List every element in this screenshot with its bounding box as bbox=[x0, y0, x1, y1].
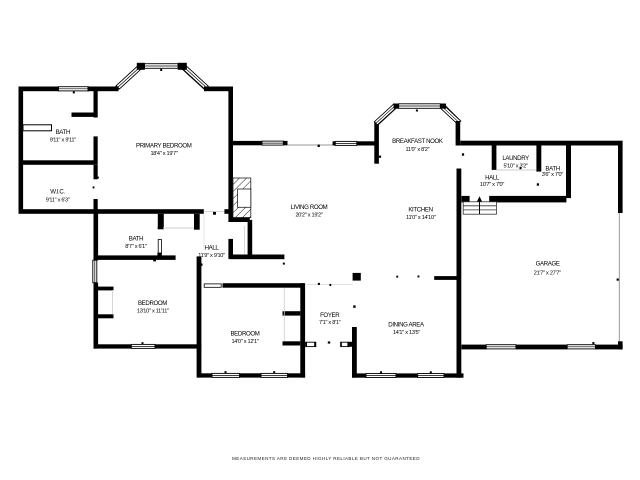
svg-text:W.I.C.: W.I.C. bbox=[50, 189, 65, 196]
svg-text:9'11" x 9'11": 9'11" x 9'11" bbox=[50, 138, 77, 144]
svg-text:5'10" x 3'2": 5'10" x 3'2" bbox=[503, 164, 528, 170]
svg-text:BREAKFAST NOOK: BREAKFAST NOOK bbox=[392, 138, 443, 145]
svg-text:10'7" x 7'0": 10'7" x 7'0" bbox=[480, 182, 505, 188]
svg-text:14'0" x 12'1": 14'0" x 12'1" bbox=[231, 339, 258, 345]
svg-text:11'0" x 8'2": 11'0" x 8'2" bbox=[406, 147, 430, 153]
svg-text:PRIMARY BEDROOM: PRIMARY BEDROOM bbox=[136, 142, 192, 149]
svg-text:HALL: HALL bbox=[485, 175, 500, 182]
svg-text:11'9" x 9'10": 11'9" x 9'10" bbox=[198, 253, 225, 259]
svg-text:7'1" x 8'1": 7'1" x 8'1" bbox=[319, 320, 341, 326]
svg-text:8'7" x 6'1": 8'7" x 6'1" bbox=[125, 244, 147, 250]
svg-text:BATH: BATH bbox=[129, 236, 143, 243]
svg-text:14'1" x 13'5": 14'1" x 13'5" bbox=[393, 330, 420, 336]
svg-text:18'4" x 19'7": 18'4" x 19'7" bbox=[150, 151, 177, 157]
svg-text:DINING AREA: DINING AREA bbox=[388, 321, 425, 328]
svg-text:21'7" x 27'7": 21'7" x 27'7" bbox=[534, 271, 561, 277]
svg-text:LAUNDRY: LAUNDRY bbox=[502, 155, 529, 162]
svg-text:BEDROOM: BEDROOM bbox=[230, 330, 259, 337]
svg-text:LIVING ROOM: LIVING ROOM bbox=[291, 204, 328, 211]
svg-text:13'10" x 11'11": 13'10" x 11'11" bbox=[137, 309, 169, 315]
svg-text:11'0" x 14'10": 11'0" x 14'10" bbox=[406, 215, 436, 221]
svg-text:KITCHEN: KITCHEN bbox=[408, 206, 432, 213]
svg-text:MEASUREMENTS ARE DEEMED HIGHLY: MEASUREMENTS ARE DEEMED HIGHLY RELIABLE … bbox=[232, 456, 420, 461]
svg-text:20'2" x 19'2": 20'2" x 19'2" bbox=[295, 213, 322, 219]
svg-text:3'6" x 7'0": 3'6" x 7'0" bbox=[542, 172, 564, 178]
svg-text:FOYER: FOYER bbox=[320, 312, 340, 319]
svg-text:HALL: HALL bbox=[205, 244, 220, 251]
svg-text:BATH: BATH bbox=[56, 129, 70, 136]
svg-text:GARAGE: GARAGE bbox=[536, 261, 560, 268]
svg-text:BEDROOM: BEDROOM bbox=[138, 300, 167, 307]
svg-text:9'11" x 6'3": 9'11" x 6'3" bbox=[46, 197, 70, 203]
